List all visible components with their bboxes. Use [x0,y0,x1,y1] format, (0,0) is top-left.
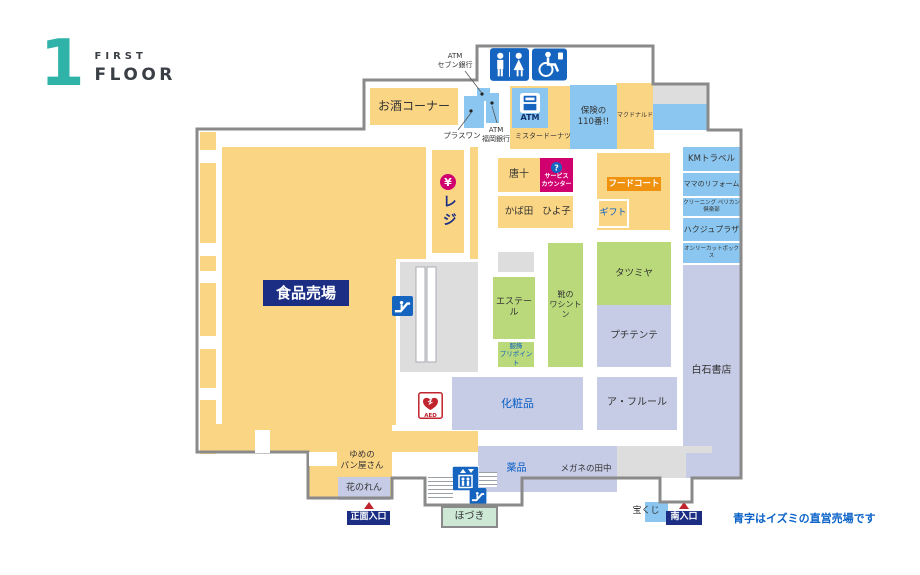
cosmetics-label: 化粧品 [501,397,534,411]
megane-tanaka-label: メガネの田中 [560,464,611,475]
register-label: レジ [439,194,457,230]
svg-text:?: ? [554,163,559,172]
yume-bakery: ゆめの パン屋さん [330,445,394,476]
estelle-label: エステール [493,297,535,320]
lavender-tongue [686,453,712,478]
hozuki: ほづき [441,506,498,528]
escalator-block [400,262,478,372]
petit-tente: プチテンテ [597,305,671,367]
mcdonalds: マクドナルド [616,83,654,149]
karaju: 唐十 [498,158,540,192]
alcohol-corner: お酒コーナー [370,88,458,125]
hoken110-label: 保険の 110番!! [578,106,610,127]
service-counter-label: サービス カウンター [541,173,571,188]
restroom [490,48,529,81]
food-left-strip [200,132,216,454]
fukuoka-label-label: ATM 福岡銀行 [482,126,510,144]
blue-top-right [653,104,707,130]
cleaning-pelican: クリーニング ペリカン倶楽部 [683,198,740,216]
fukuoka-label: ATM 福岡銀行 [479,124,513,145]
megane-tanaka: メガネの田中 [555,446,617,492]
escalator-icon [392,296,413,316]
svg-text:¥: ¥ [444,176,452,189]
yume-bakery-label: ゆめの パン屋さん [341,450,384,471]
hana-noren-label: 花のれん [346,483,382,494]
km-travel-label: KMトラベル [688,154,735,165]
takarakuji-label: 宝くじ [628,505,664,519]
karaju-label: 唐十 [509,169,529,182]
alcohol-corner-label: お酒コーナー [378,99,450,114]
petit-tente-label: プチテンテ [610,330,658,342]
tatsumiya: タツミヤ [597,242,671,305]
only-cut-box: オンリーカットボックス [683,243,740,263]
mama-reform-label: ママのリフォーム [684,180,740,189]
foodcourt-badge: フードコート [607,177,661,191]
atm-seven-label-label: ATM セブン銀行 [438,52,473,70]
washington-shoes-label: 靴の ワシントン [548,290,583,320]
escalator-icon [469,488,487,504]
atm-seven-label: ATM セブン銀行 [430,50,480,72]
estelle: エステール [493,277,535,339]
a-fleur: ア・フルール [597,377,677,430]
gift-label: ギフト [599,208,626,219]
svg-text:AED: AED [424,413,437,419]
aed: AED [418,392,443,419]
mrdonut-label-label: ミスタードーナツ [515,132,571,141]
service-counter: ?サービス カウンター [540,158,573,192]
plusone-label-label: プラスワン [443,131,480,140]
mcdonalds-label: マクドナルド [617,112,653,120]
plusone-label: プラスワン [440,130,484,141]
hozuki-label: ほづき [455,511,485,524]
main-entrance: 正面入口 [347,511,390,525]
hiyoko-label: ひよ子 [542,206,571,218]
shiraishi-books-label: 白石書店 [692,365,732,378]
yen-icon: ¥ [440,174,456,190]
restroom-icon [490,48,529,81]
yakuhin-label: 薬品 [507,463,527,476]
kabata: かば田 [498,196,540,228]
washington-shoes: 靴の ワシントン [548,243,583,367]
km-travel: KMトラベル [683,147,740,171]
a-fleur-label: ア・フルール [607,397,667,410]
pripoint: 服飾 プリポイント [498,342,534,367]
floor-map: 1 FIRST FLOOR マクドナルドお酒コーナー保険の 110番!!ミスター… [0,0,920,575]
gray-top-right [653,85,707,104]
atm-booth: ATM [512,88,548,128]
hoken110: 保険の 110番!! [570,85,617,149]
wheelchair-icon [532,48,567,81]
stairs-right [479,472,497,487]
hana-noren: 花のれん [338,477,390,500]
only-cut-box-label: オンリーカットボックス [683,246,740,260]
mama-reform: ママのリフォーム [683,173,740,196]
pripoint-label: 服飾 プリポイント [498,342,534,366]
fukuokabank-atm [486,93,499,123]
stairs-left [428,477,453,500]
cosmetics: 化粧品 [452,377,583,430]
escalator-bottom [469,488,487,504]
map-areas: マクドナルドお酒コーナー保険の 110番!!ミスタードーナツ¥レジ唐十?サービス… [0,0,920,575]
hakuju-plaza: ハクジュプラザ [683,218,740,241]
escalator-mid [392,296,413,316]
south-entrance: 南入口 [666,511,702,525]
mrdonut-label: ミスタードーナツ [512,128,574,144]
atm-icon [520,93,540,113]
hakuju-plaza-label: ハクジュプラザ [684,225,739,235]
question-icon: ? [551,162,562,173]
hiyoko: ひよ子 [540,196,573,228]
entrance-arrow-icon [364,502,374,509]
food-dept-label-label: 食品売場 [276,284,336,303]
takarakuji-label-label: 宝くじ [632,506,659,517]
main-entrance-label: 正面入口 [350,512,386,523]
gift: ギフト [597,199,629,228]
atm-booth-label: ATM [521,113,540,123]
legend-note: 青字はイズミの直営売場です [733,510,876,526]
aed-icon: AED [418,392,443,419]
gray-small [498,252,534,272]
tatsumiya-label: タツミヤ [615,268,653,280]
kabata-label: かば田 [505,206,534,218]
south-entrance-label: 南入口 [670,512,697,523]
cleaning-pelican-label: クリーニング ペリカン倶楽部 [683,200,740,214]
food-dept-label: 食品売場 [263,280,349,306]
foodcourt-badge-label: フードコート [608,179,659,190]
register: ¥レジ [432,150,464,253]
accessible-restroom [532,48,567,81]
entrance-arrow-icon [679,502,689,509]
